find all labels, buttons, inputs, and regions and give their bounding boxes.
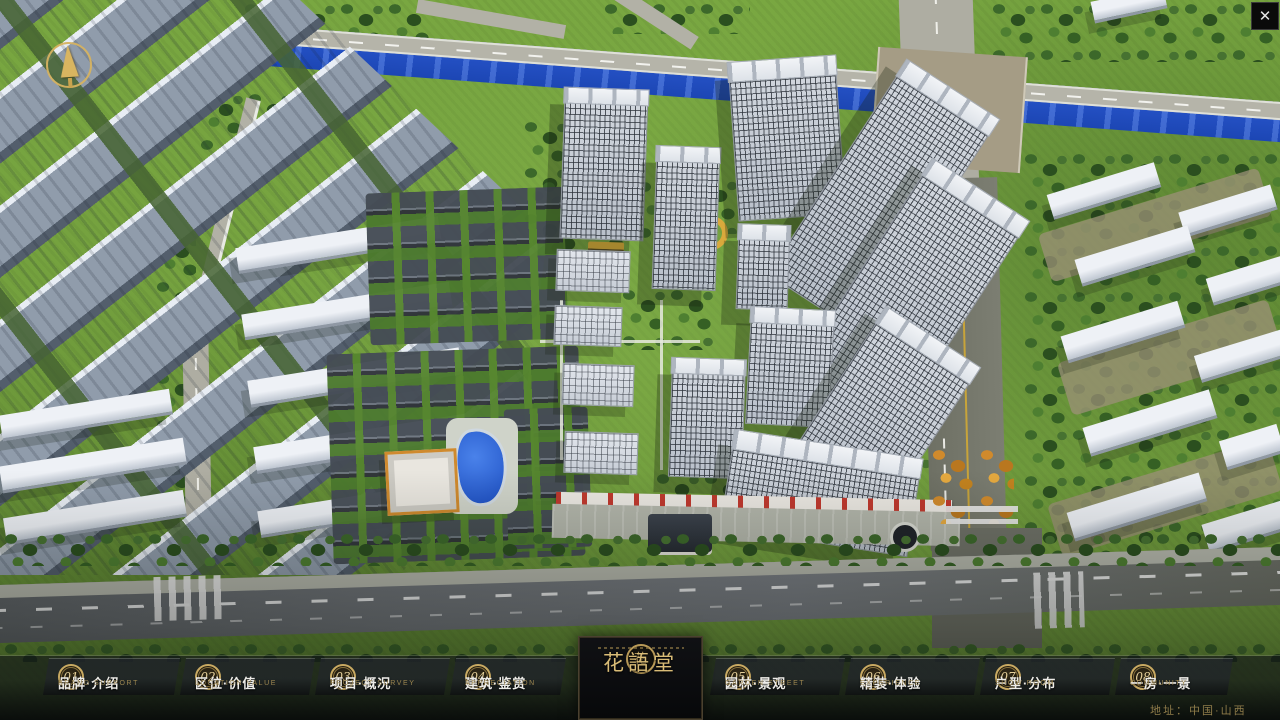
nav-item-views[interactable]: 08 一房·一景 COMMUNITY (1115, 658, 1233, 695)
nav-item-location[interactable]: 02 区位·价值 LOCATION VALUE (180, 658, 315, 695)
project-address: 地址：中国·山西 (1150, 702, 1247, 718)
close-button[interactable]: ✕ (1251, 2, 1279, 30)
compass-arrow (59, 44, 79, 77)
nav-item-garden[interactable]: 05 园林·景观 GARDEN STREET (710, 658, 845, 695)
project-title: 花語堂 (603, 647, 678, 677)
nav-label-en: GARDEN STREET (725, 680, 805, 687)
midrise-building (563, 431, 638, 476)
nav-label-en: APPRECIATION (465, 680, 536, 687)
nav-label-en: BRAND SUPPORT (58, 680, 139, 687)
crosswalk (1033, 571, 1085, 628)
logo-divider (598, 647, 684, 649)
residential-tower (736, 225, 791, 311)
residential-tower (652, 147, 721, 291)
sales-presentation-screen: ✕ 01 品牌·介绍 BRAND SUPPORT 02 区位·价值 LOCATI… (0, 0, 1280, 720)
residential-tower (559, 89, 648, 242)
nav-label-en: EXPERIENCE (860, 680, 921, 687)
crosswalk (946, 506, 1018, 524)
midrise-building (561, 363, 634, 407)
nav-item-floorplan[interactable]: 07 户型·分布 SHOW ROOM (980, 658, 1115, 695)
compass-stem (68, 78, 73, 88)
midrise-building (553, 305, 622, 347)
midrise-building (555, 249, 630, 294)
nav-label-en: PROJECT SURVEY (330, 680, 416, 687)
garden-path (660, 300, 663, 470)
compass-north-icon (40, 36, 98, 94)
kindergarten-building (384, 448, 459, 516)
project-logo-tile[interactable]: 花 花語堂 (578, 636, 703, 720)
nav-label-en: SHOW ROOM (995, 680, 1055, 687)
nav-label-en: LOCATION VALUE (195, 680, 277, 687)
street-trees (0, 530, 1280, 566)
nav-item-architecture[interactable]: 04 建筑·鉴赏 APPRECIATION (450, 658, 566, 695)
courtyard-homes (365, 187, 568, 346)
close-icon: ✕ (1259, 7, 1272, 25)
nav-item-interior[interactable]: 06 精装·体验 EXPERIENCE (845, 658, 980, 695)
nav-item-project[interactable]: 03 项目·概况 PROJECT SURVEY (315, 658, 450, 695)
crosswalk (153, 575, 228, 621)
nav-label-en: COMMUNITY (1130, 680, 1188, 687)
nav-item-brand[interactable]: 01 品牌·介绍 BRAND SUPPORT (43, 658, 180, 695)
